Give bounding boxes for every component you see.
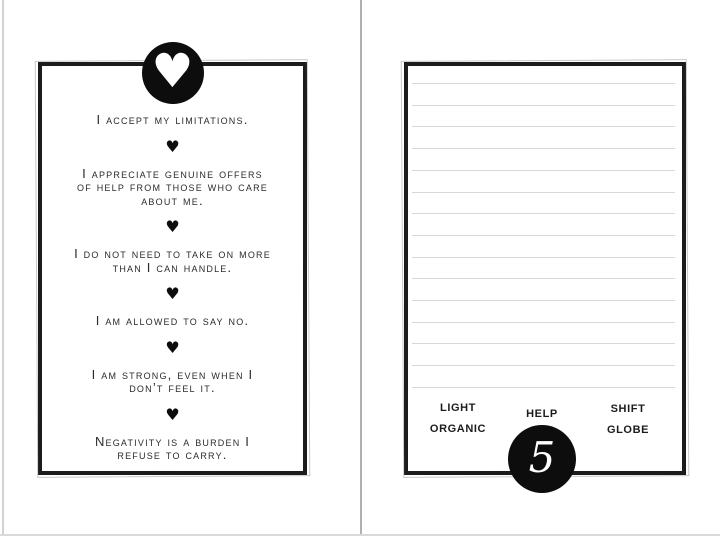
ruled-line	[412, 192, 675, 193]
ruled-line	[412, 300, 675, 301]
page-left-edge-line	[2, 0, 4, 534]
heart-divider-icon: ♥	[50, 287, 295, 301]
affirmation-text: I am allowed to say no.	[50, 314, 295, 328]
scatter-word-shift: SHIFT	[611, 403, 646, 415]
heart-glyph: ♥	[151, 48, 193, 95]
ruled-line	[412, 83, 675, 84]
affirmation-text: Negativity is a burden Irefuse to carry.	[50, 435, 295, 462]
ruled-line	[412, 343, 675, 344]
ruled-line	[412, 387, 675, 388]
page-number: 5	[529, 437, 556, 479]
page-spine-divider	[360, 0, 362, 534]
ruled-line	[412, 235, 675, 236]
ruled-line	[412, 170, 675, 171]
book-spread: ♥ I accept my limitations.♥I appreciate …	[0, 0, 720, 541]
affirmation-text: I do not need to take on morethan I can …	[50, 247, 295, 274]
ruled-line	[412, 105, 675, 106]
heart-divider-icon: ♥	[50, 408, 295, 422]
ruled-line	[412, 365, 675, 366]
ruled-line	[412, 322, 675, 323]
scatter-word-organic: ORGANIC	[430, 423, 486, 435]
ruled-line	[412, 257, 675, 258]
scatter-word-globe: GLOBE	[607, 424, 649, 436]
ruled-line	[412, 126, 675, 127]
ruled-line	[412, 148, 675, 149]
affirmation-text: I appreciate genuine offersof help from …	[50, 167, 295, 208]
ruled-line	[412, 213, 675, 214]
heart-divider-icon: ♥	[50, 140, 295, 154]
heart-divider-icon: ♥	[50, 341, 295, 355]
affirmation-text: I accept my limitations.	[50, 113, 295, 127]
left-page-affirmations-frame: ♥ I accept my limitations.♥I appreciate …	[38, 62, 307, 475]
affirmations-list: I accept my limitations.♥I appreciate ge…	[42, 66, 303, 471]
affirmation-text: I am strong, even when Idon’t feel it.	[50, 368, 295, 395]
scatter-word-light: LIGHT	[440, 402, 476, 414]
page-bottom-edge-line	[0, 534, 720, 536]
heart-circle-icon: ♥	[142, 42, 204, 104]
heart-divider-icon: ♥	[50, 220, 295, 234]
ruled-line	[412, 278, 675, 279]
right-page-writing-frame: LIGHT HELP SHIFT ORGANIC GLOBE 5	[404, 62, 686, 475]
scatter-word-help: HELP	[526, 408, 558, 420]
page-number-badge: 5	[508, 425, 576, 493]
